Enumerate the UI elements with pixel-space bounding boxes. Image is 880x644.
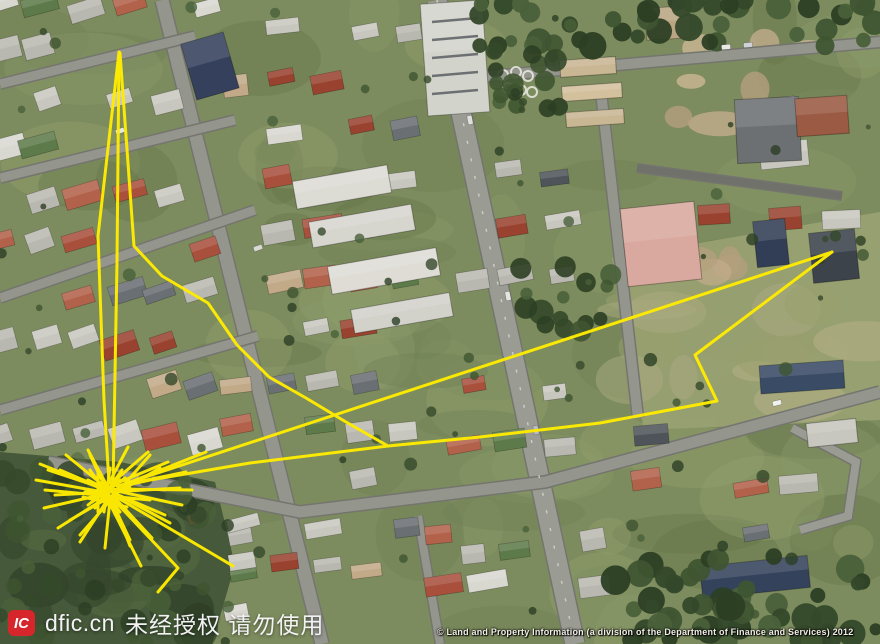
ic-logo: IC: [8, 610, 35, 636]
copyright-attribution: © Land and Property Information (a divis…: [437, 627, 857, 637]
aerial-map: IC dfic.cn 未经授权 请勿使用 © Land and Property…: [0, 0, 880, 644]
satellite-map: [0, 0, 880, 644]
dfic-watermark: IC dfic.cn 未经授权 请勿使用: [8, 606, 324, 640]
dfic-brand-text: dfic.cn: [45, 610, 115, 637]
usage-notice-text: 未经授权 请勿使用: [125, 606, 324, 640]
